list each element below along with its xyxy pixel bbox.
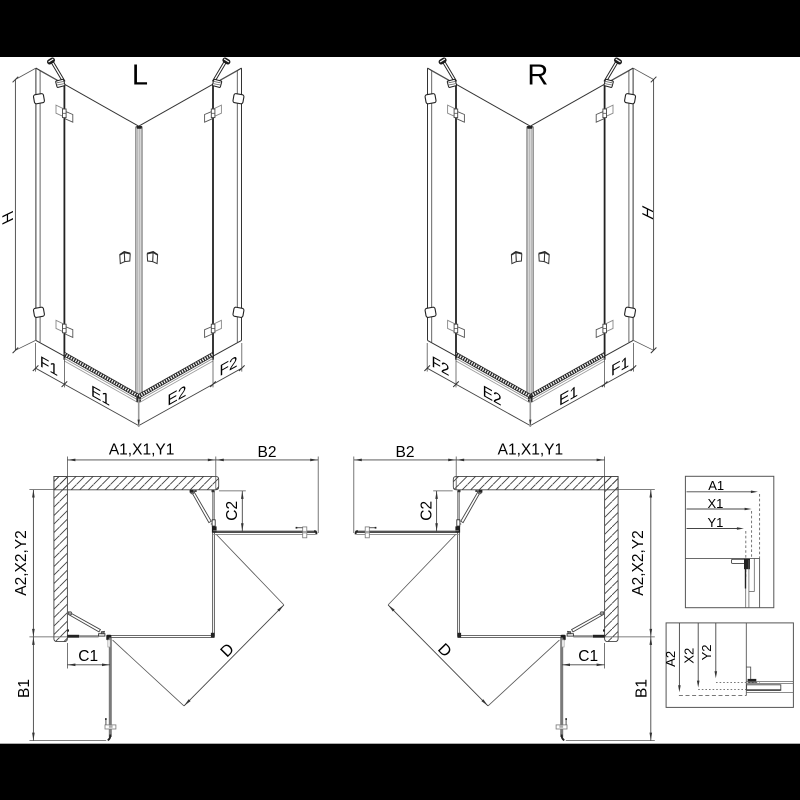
svg-text:R: R bbox=[527, 59, 548, 91]
svg-text:C2: C2 bbox=[224, 501, 241, 521]
svg-text:B2: B2 bbox=[258, 444, 277, 461]
svg-text:Y1: Y1 bbox=[707, 515, 723, 530]
svg-text:A1,X1,Y1: A1,X1,Y1 bbox=[498, 441, 564, 458]
svg-text:C1: C1 bbox=[578, 648, 598, 665]
svg-text:L: L bbox=[132, 59, 148, 91]
svg-text:B1: B1 bbox=[633, 679, 650, 698]
svg-text:A1,X1,Y1: A1,X1,Y1 bbox=[109, 441, 175, 458]
svg-text:A2,X2,Y2: A2,X2,Y2 bbox=[13, 530, 30, 596]
svg-text:C1: C1 bbox=[78, 648, 98, 665]
svg-text:A2: A2 bbox=[663, 651, 678, 667]
svg-text:A1: A1 bbox=[708, 478, 724, 493]
svg-text:Y2: Y2 bbox=[699, 644, 714, 660]
svg-text:B2: B2 bbox=[396, 444, 415, 461]
svg-text:C2: C2 bbox=[418, 501, 435, 521]
svg-text:A2,X2,Y2: A2,X2,Y2 bbox=[630, 530, 647, 596]
svg-text:X2: X2 bbox=[682, 648, 697, 664]
svg-text:B1: B1 bbox=[16, 679, 33, 698]
